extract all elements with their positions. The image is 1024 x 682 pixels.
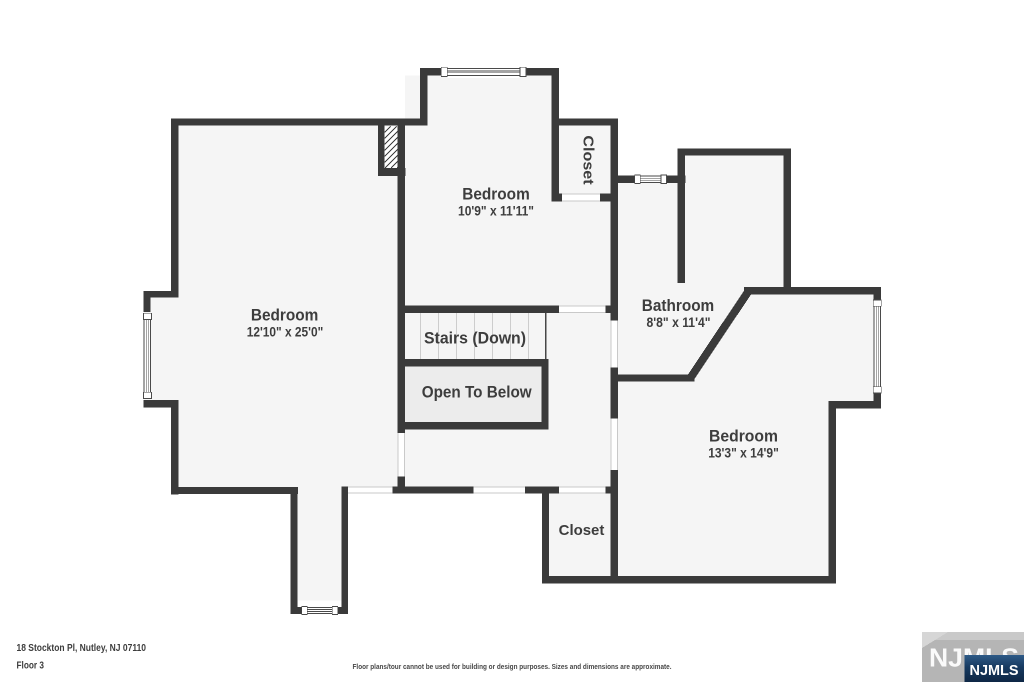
svg-text:Closet: Closet	[580, 135, 597, 184]
svg-text:Floor 3: Floor 3	[17, 661, 45, 672]
svg-text:8'8" x 11'4": 8'8" x 11'4"	[647, 315, 711, 330]
svg-text:NJMLS: NJMLS	[970, 662, 1019, 679]
svg-text:Open To Below: Open To Below	[422, 383, 533, 402]
svg-text:Bedroom: Bedroom	[462, 184, 530, 203]
svg-text:13'3" x 14'9": 13'3" x 14'9"	[708, 445, 779, 460]
svg-text:Closet: Closet	[559, 522, 605, 539]
svg-text:Bathroom: Bathroom	[642, 296, 714, 315]
svg-text:Stairs (Down): Stairs (Down)	[424, 329, 526, 348]
svg-text:Floor plans/tour cannot be use: Floor plans/tour cannot be used for buil…	[353, 664, 672, 671]
svg-text:10'9" x 11'11": 10'9" x 11'11"	[458, 203, 534, 218]
svg-text:12'10" x 25'0": 12'10" x 25'0"	[247, 324, 324, 339]
svg-text:18 Stockton Pl, Nutley, NJ 071: 18 Stockton Pl, Nutley, NJ 07110	[17, 643, 147, 654]
svg-text:Bedroom: Bedroom	[251, 305, 319, 324]
svg-text:Bedroom: Bedroom	[709, 427, 778, 446]
